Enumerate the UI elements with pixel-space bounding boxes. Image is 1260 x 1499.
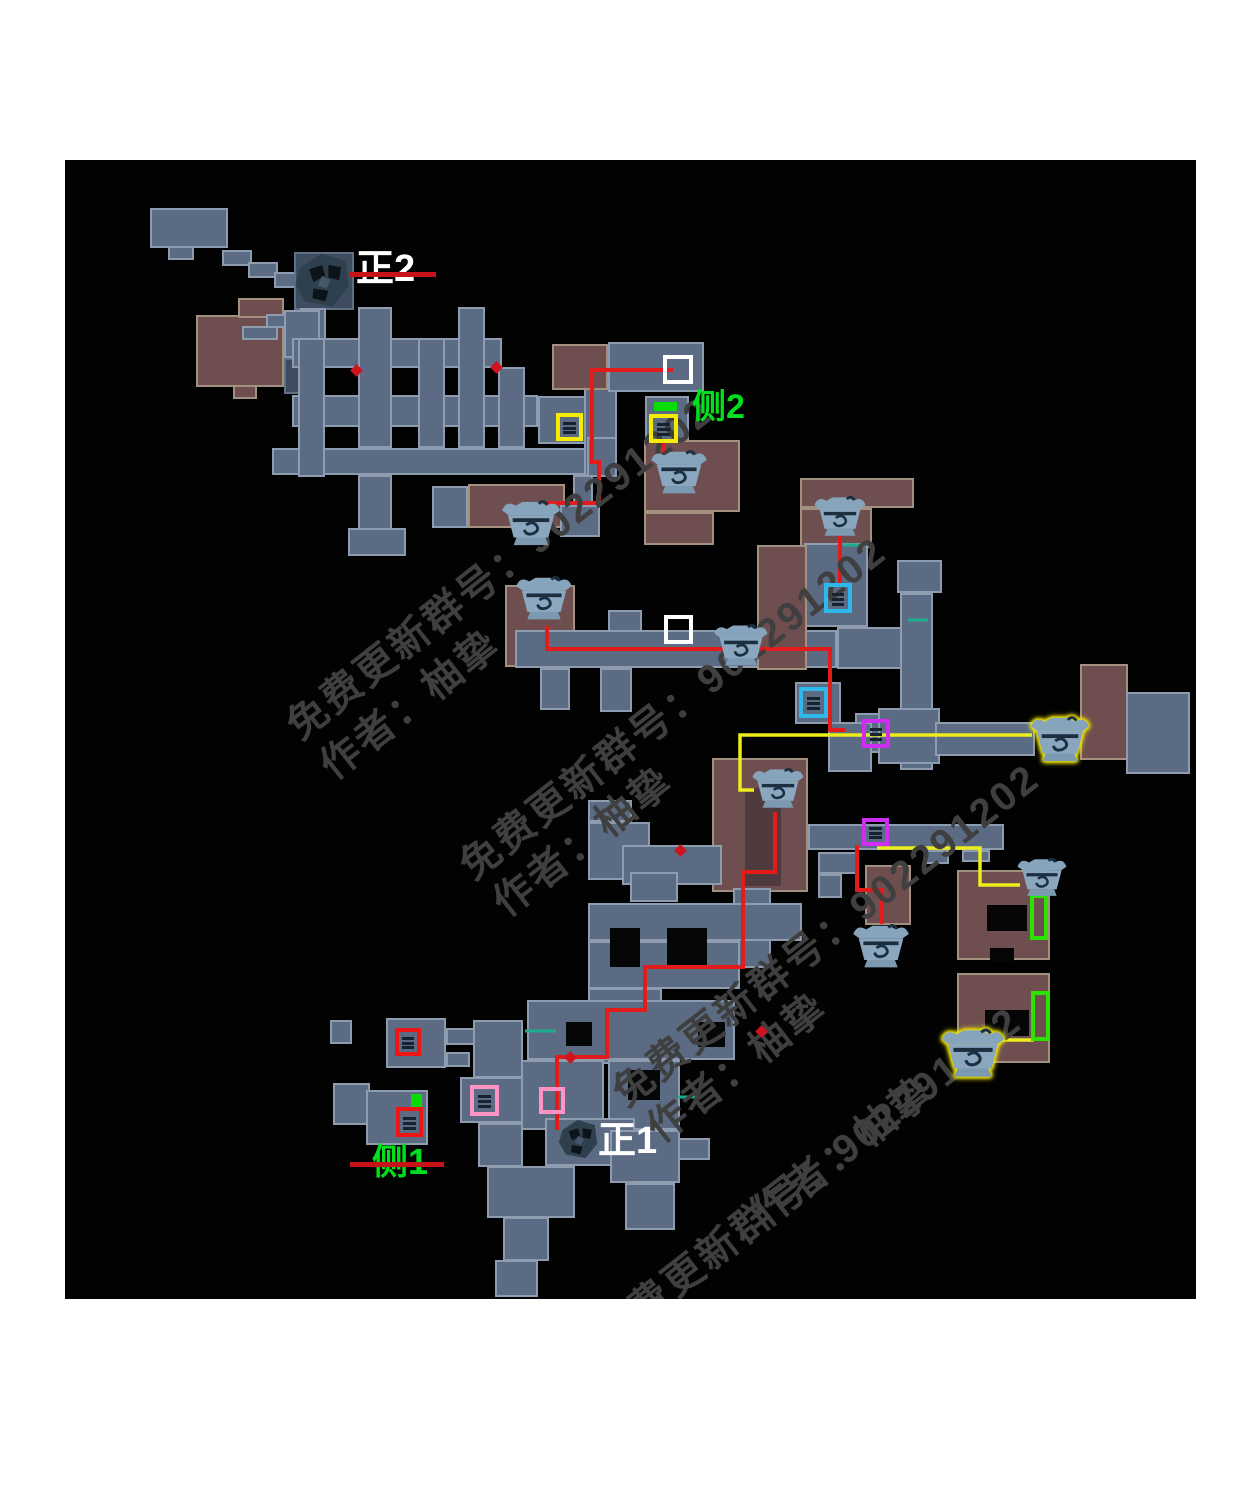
marker-box <box>539 1087 565 1114</box>
marker-stripe <box>832 593 845 596</box>
marker-box <box>799 687 828 718</box>
treasure-chest-icon <box>512 574 576 624</box>
marker-stripe <box>402 1037 414 1040</box>
treasure-chest-icon <box>810 494 870 540</box>
marker-box <box>663 355 693 384</box>
marker-stripe <box>403 1127 415 1130</box>
marker-stripe <box>402 1042 414 1045</box>
green-platform-marker <box>654 402 677 411</box>
chest-glyph <box>1031 718 1089 762</box>
marker-stripe <box>478 1095 491 1098</box>
marker-box <box>556 413 583 441</box>
marker-box <box>664 615 693 644</box>
chest-glyph <box>714 625 767 665</box>
boss-glyph <box>295 253 348 306</box>
screenshot-page: 免费更新群号：902291202作者：柚挚免费更新群号：902291202作者：… <box>0 0 1260 1499</box>
boss-glyph <box>559 1120 597 1158</box>
treasure-chest-icon <box>748 766 808 812</box>
boss-skull-icon <box>290 248 354 312</box>
chest-glyph <box>651 451 707 493</box>
marker-stripe <box>869 827 881 830</box>
marker-stripe <box>870 728 883 731</box>
marker-box <box>1031 991 1050 1041</box>
marker-box <box>396 1107 423 1137</box>
label-main-boss-1: 正1 <box>598 1122 657 1160</box>
label-side-boss-2: 侧2 <box>692 390 745 424</box>
marker-box <box>1030 894 1048 940</box>
marker-stripe <box>478 1100 491 1103</box>
chest-glyph <box>752 769 803 808</box>
treasure-chest-icon <box>850 922 912 972</box>
marker-box <box>824 583 852 613</box>
chest-glyph <box>502 502 560 546</box>
marker-box <box>862 818 889 846</box>
marker-stripe <box>478 1105 491 1108</box>
marker-stripe <box>807 707 820 710</box>
marker-stripe <box>832 603 845 606</box>
marker-stripe <box>403 1117 415 1120</box>
chest-glyph <box>1018 859 1067 896</box>
treasure-chest-icon <box>712 622 770 670</box>
marker-stripe <box>807 702 820 705</box>
marker-stripe <box>870 733 883 736</box>
marker-stripe <box>657 433 670 436</box>
label-main-boss-2: 正2 <box>356 250 415 288</box>
chest-glyph <box>516 577 572 619</box>
chest-glyph <box>853 925 909 967</box>
marker-stripe <box>563 427 575 430</box>
marker-stripe <box>657 428 670 431</box>
marker-stripe <box>832 598 845 601</box>
marker-stripe <box>563 422 575 425</box>
marker-stripe <box>807 697 820 700</box>
treasure-chest-icon <box>940 1026 1006 1082</box>
strikethrough-line <box>350 272 436 277</box>
treasure-chest-icon <box>648 448 710 498</box>
marker-stripe <box>403 1122 415 1125</box>
marker-box <box>862 719 890 748</box>
strikethrough-line <box>350 1162 444 1167</box>
marker-stripe <box>563 431 575 434</box>
marker-box <box>470 1085 499 1116</box>
treasure-chest-icon <box>1014 856 1070 900</box>
boss-skull-icon <box>554 1116 602 1162</box>
treasure-chest-icon <box>500 498 562 550</box>
game-map: 免费更新群号：902291202作者：柚挚免费更新群号：902291202作者：… <box>65 160 1196 1299</box>
marker-stripe <box>869 832 881 835</box>
marker-stripe <box>402 1046 414 1049</box>
marker-stripe <box>869 836 881 839</box>
marker-stripe <box>657 423 670 426</box>
marker-box <box>395 1028 421 1056</box>
marker-stripe <box>870 738 883 741</box>
treasure-chest-icon <box>1028 714 1092 766</box>
chest-glyph <box>942 1030 1004 1077</box>
marker-box <box>649 414 678 443</box>
chest-glyph <box>814 497 865 536</box>
